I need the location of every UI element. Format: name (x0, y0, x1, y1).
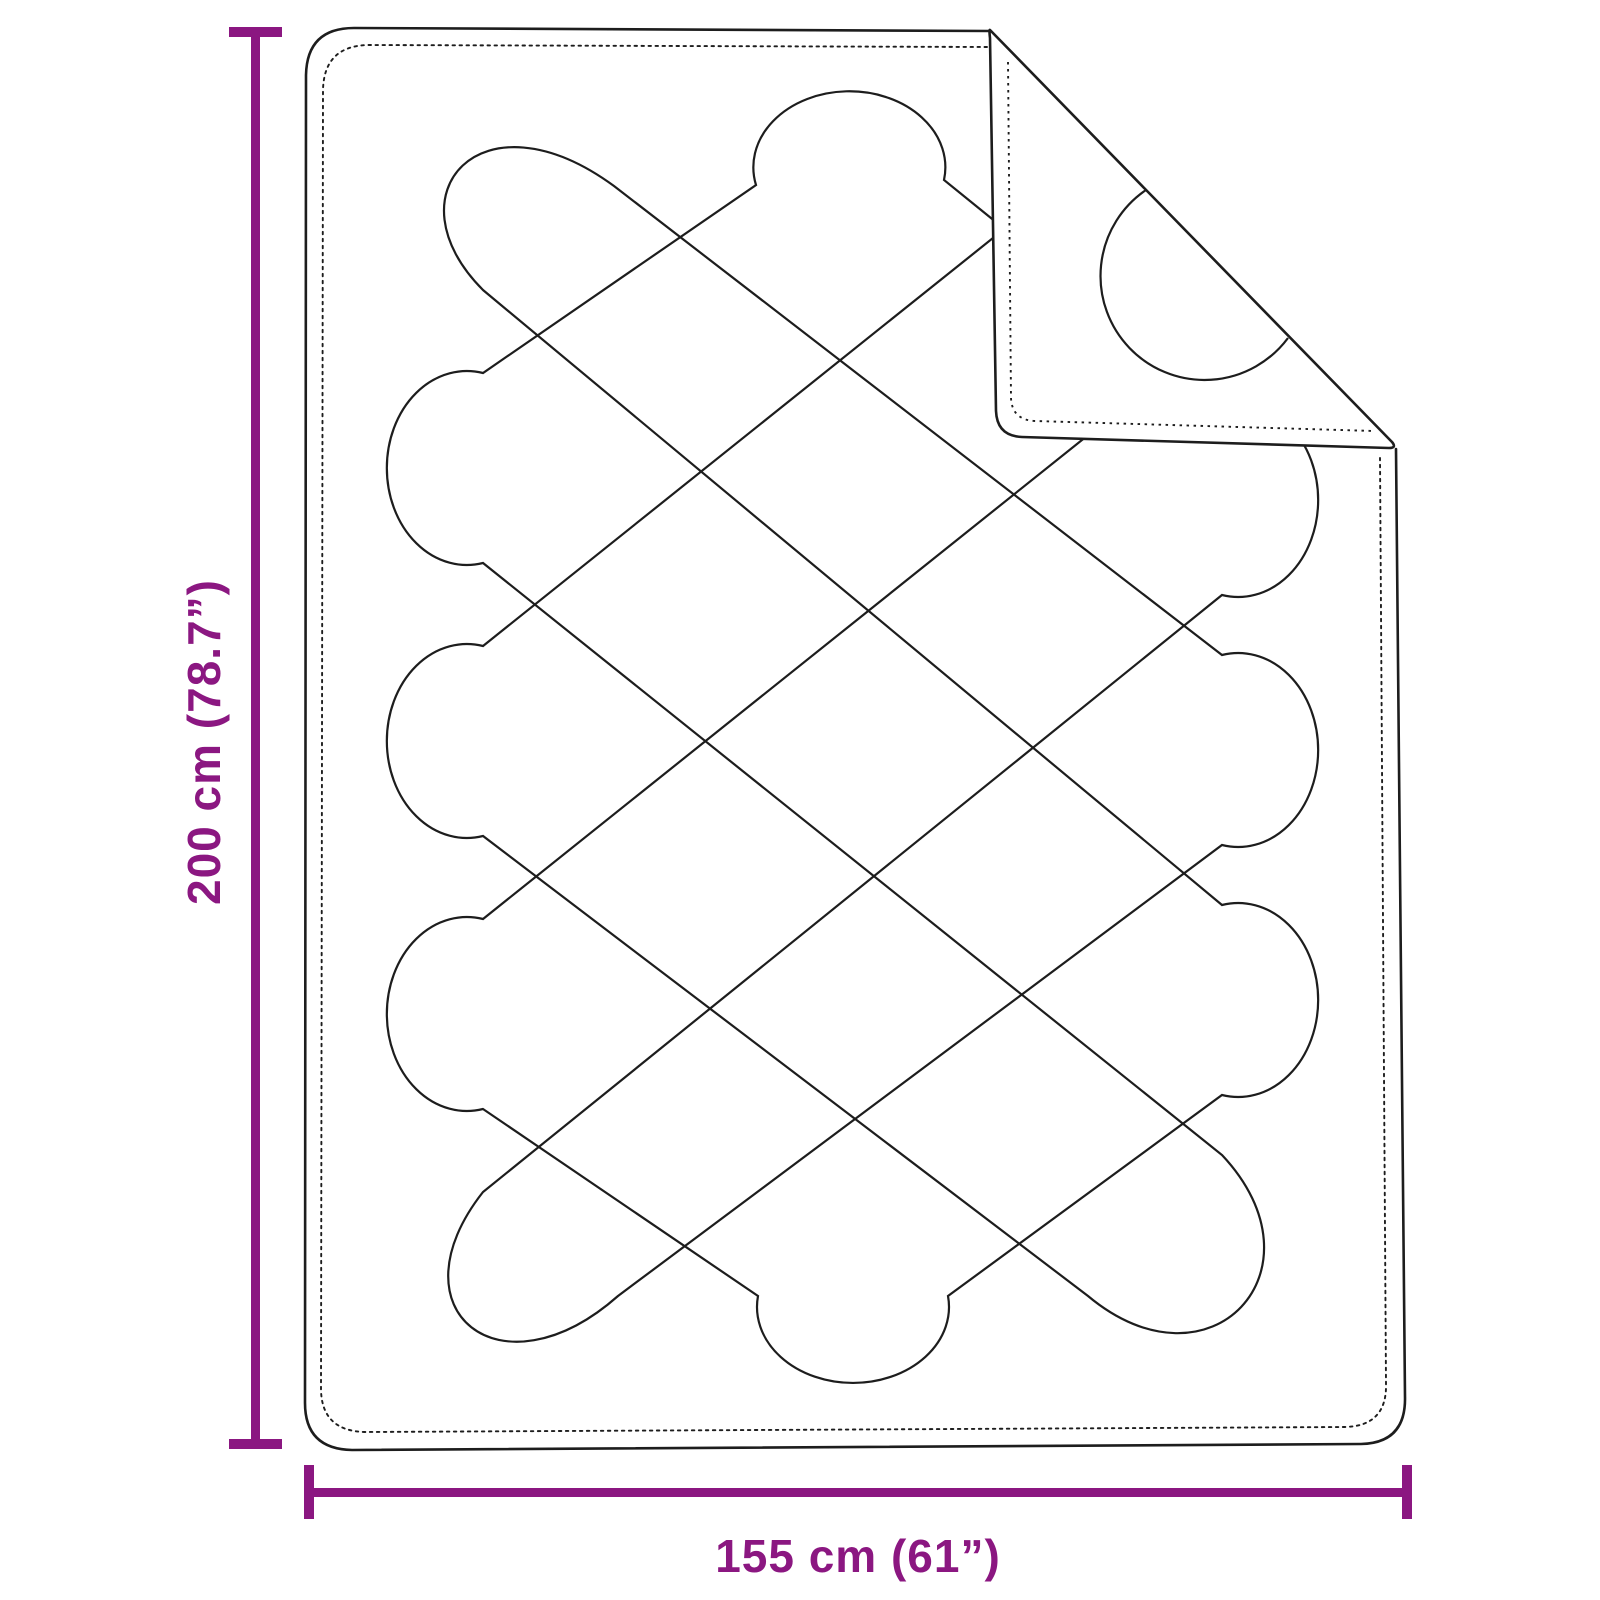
height-dimension-cap-bottom (229, 1439, 282, 1449)
width-dimension-cap-left (304, 1465, 314, 1519)
blanket-edge-stitching (321, 45, 1386, 1432)
folded-corner (990, 30, 1394, 448)
blanket-outer-edge (305, 28, 1405, 1450)
width-dimension-line (307, 1488, 1409, 1497)
width-dimension-cap-right (1402, 1465, 1412, 1519)
height-dimension-line (251, 31, 260, 1443)
width-dimension-label: 155 cm (61”) (558, 1526, 1158, 1586)
blanket-illustration (0, 0, 1600, 1600)
fold-flap (990, 30, 1394, 448)
height-dimension-label: 200 cm (78.7”) (174, 442, 234, 1042)
height-dimension-cap-top (229, 27, 282, 37)
diagram-canvas: 200 cm (78.7”) 155 cm (61”) (0, 0, 1600, 1600)
blanket-body (305, 28, 1405, 1450)
